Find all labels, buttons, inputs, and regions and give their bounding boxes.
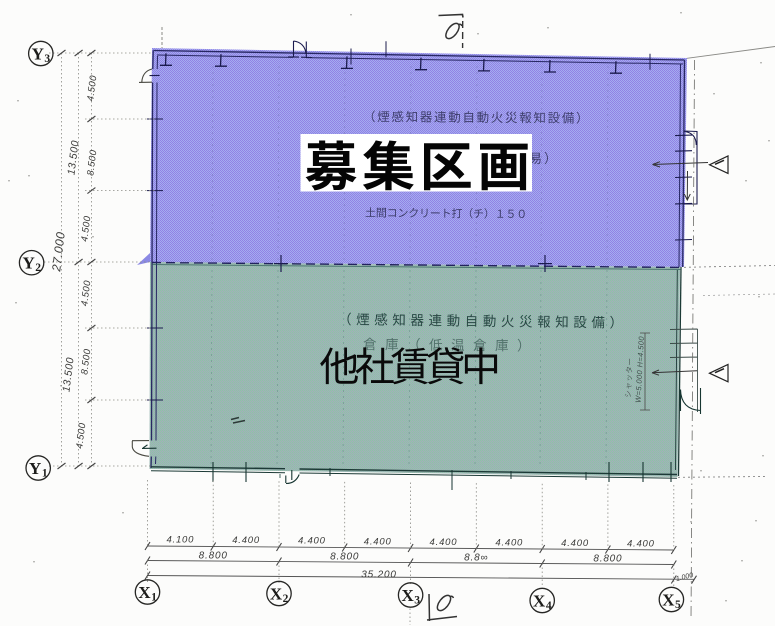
svg-text:35.200: 35.200 (361, 570, 396, 581)
svg-text:X: X (662, 591, 675, 610)
svg-text:1: 1 (42, 468, 48, 480)
svg-text:X: X (138, 583, 151, 602)
svg-text:5: 5 (675, 599, 681, 611)
svg-text:X: X (401, 586, 414, 605)
svg-text:1: 1 (151, 592, 157, 604)
svg-text:4.100: 4.100 (166, 535, 194, 546)
svg-text:4: 4 (546, 600, 552, 612)
svg-text:X: X (533, 592, 546, 611)
svg-text:4.400: 4.400 (495, 537, 523, 548)
svg-text:3: 3 (414, 595, 420, 607)
svg-text:8.800: 8.800 (330, 551, 359, 562)
svg-text:2: 2 (283, 593, 289, 605)
svg-text:3: 3 (44, 53, 50, 65)
svg-text:Y: Y (22, 254, 34, 273)
svg-text:4.400: 4.400 (430, 537, 458, 548)
svg-text:4.400: 4.400 (561, 538, 589, 549)
svg-text:4.400: 4.400 (364, 536, 392, 547)
svg-text:4.400: 4.400 (627, 538, 655, 549)
svg-text:4.400: 4.400 (298, 536, 326, 547)
svg-text:2: 2 (35, 262, 41, 274)
svg-text:8.8∞: 8.8∞ (464, 553, 488, 564)
svg-text:8.800: 8.800 (593, 554, 622, 565)
svg-text:8.800: 8.800 (199, 550, 228, 561)
svg-text:Y: Y (29, 459, 41, 478)
svg-text:X: X (270, 585, 283, 604)
svg-text:4.400: 4.400 (232, 535, 260, 546)
svg-text:Y: Y (32, 45, 44, 64)
